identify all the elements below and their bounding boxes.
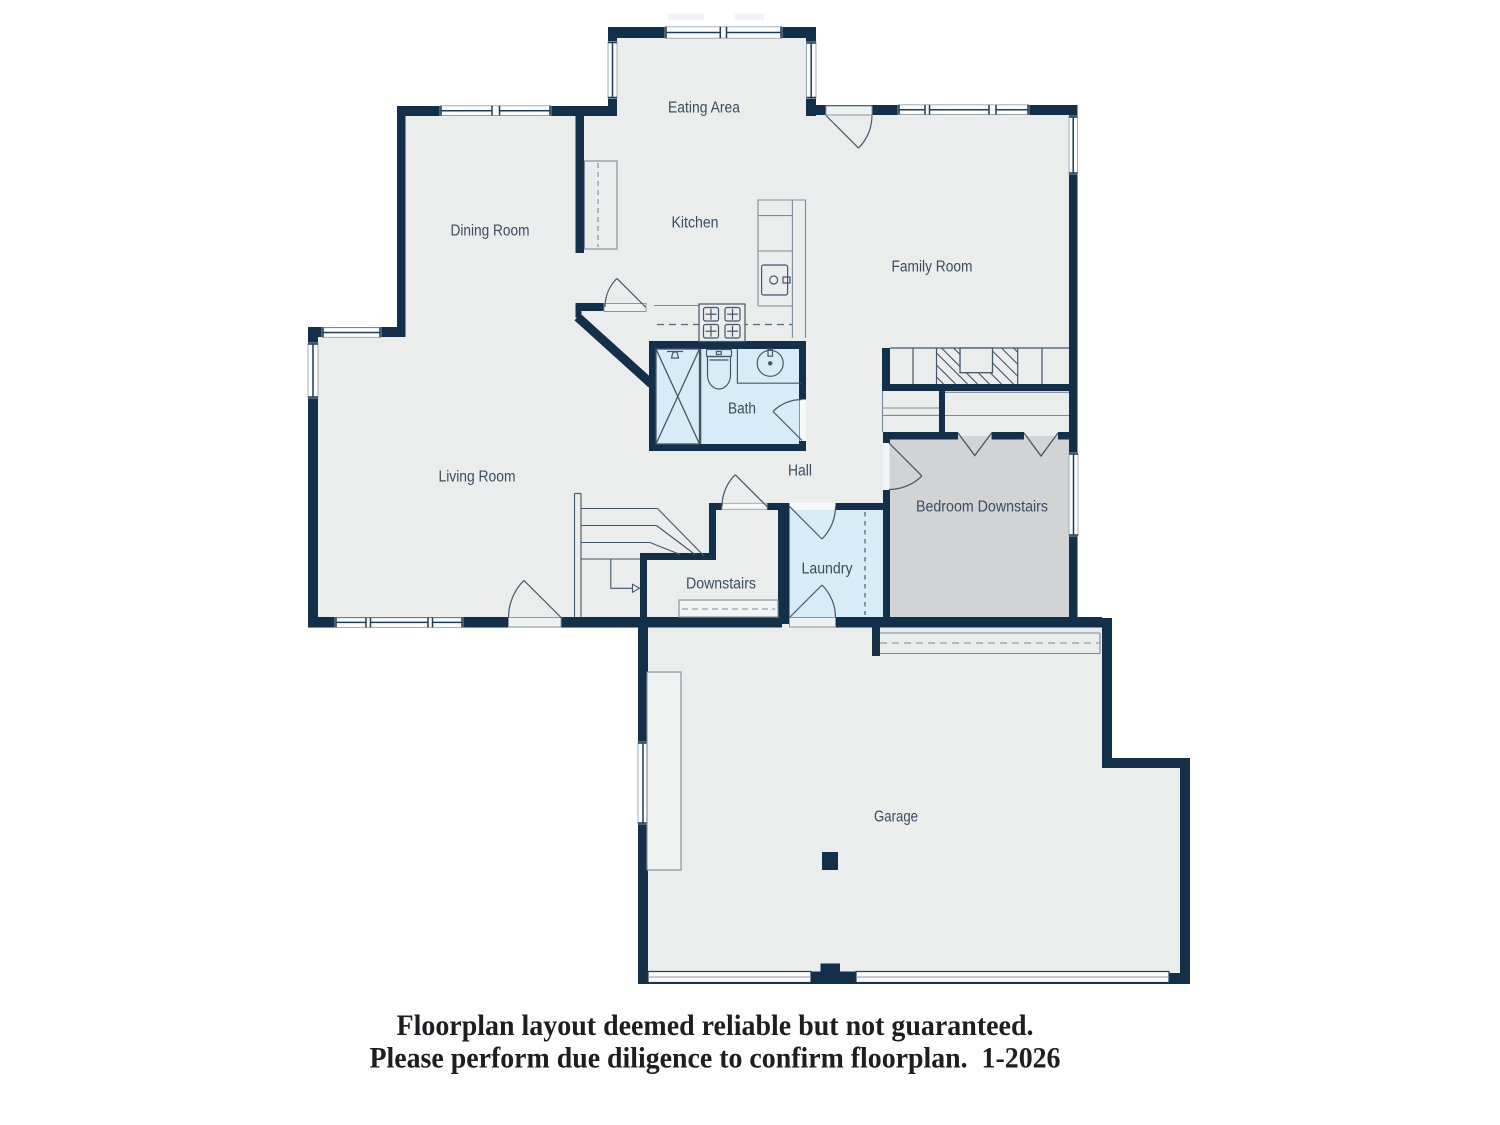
svg-text:Bath: Bath <box>728 401 756 418</box>
svg-text:Laundry: Laundry <box>802 561 853 578</box>
svg-text:Family Room: Family Room <box>892 259 973 276</box>
svg-text:Downstairs: Downstairs <box>686 576 756 593</box>
svg-text:Dining Room: Dining Room <box>451 223 530 240</box>
svg-text:Bedroom Downstairs: Bedroom Downstairs <box>916 499 1048 516</box>
svg-text:Floorplan layout deemed reliab: Floorplan layout deemed reliable but not… <box>397 1009 1034 1042</box>
svg-text:Please perform due diligence t: Please perform due diligence to confirm … <box>370 1042 1061 1075</box>
svg-text:Garage: Garage <box>874 809 918 826</box>
svg-text:Hall: Hall <box>788 463 812 480</box>
svg-text:Eating Area: Eating Area <box>668 100 740 117</box>
svg-text:Living Room: Living Room <box>439 469 516 486</box>
svg-text:Kitchen: Kitchen <box>672 215 719 232</box>
